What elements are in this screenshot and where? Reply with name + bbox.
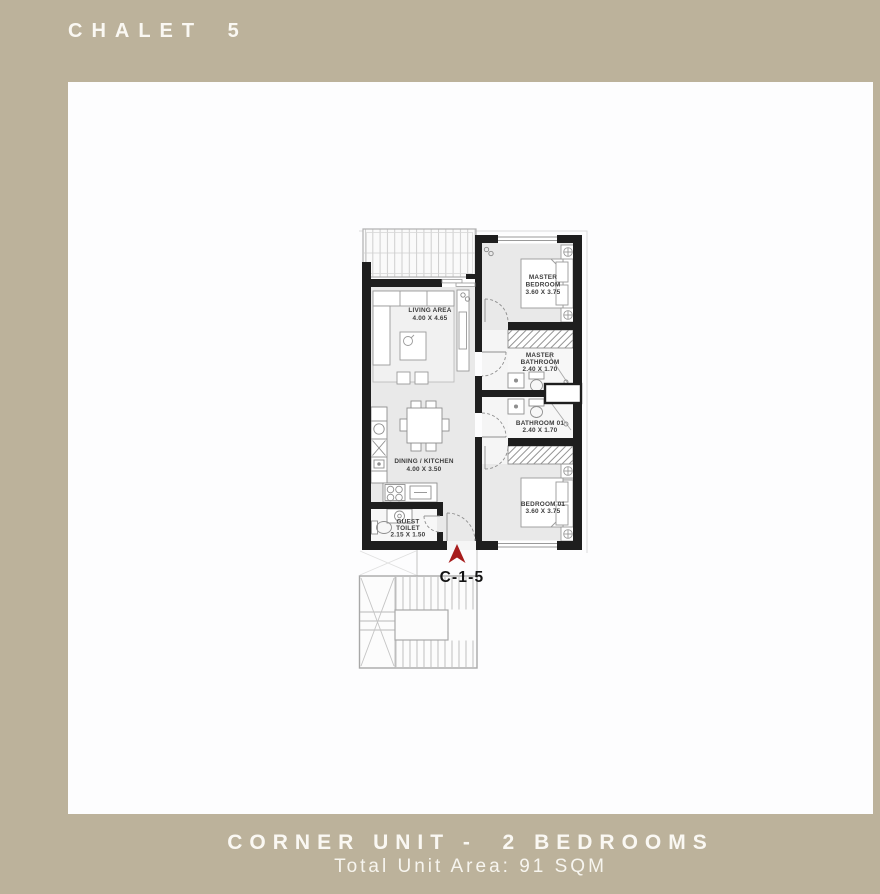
balcony [363, 229, 476, 277]
unit-number-label: C-1-5 [440, 569, 485, 586]
bathroom01-dims: 2.40 X 1.70 [523, 427, 558, 434]
master-bedroom-label2: BEDROOM [526, 282, 561, 289]
bedroom01-label: BEDROOM 01 [521, 501, 566, 508]
living-area-label: LIVING AREA [408, 307, 451, 314]
dining-kitchen-label: DINING / KITCHEN [394, 458, 453, 465]
master-bathroom-label2: BATHROOM [521, 359, 560, 366]
service-shaft [545, 384, 581, 403]
footer-unit-area: Total Unit Area: 91 SQM [68, 856, 873, 878]
master-bathroom-dims: 2.40 X 1.70 [523, 366, 558, 373]
stairs [360, 550, 478, 668]
footer-unit-type: CORNER UNIT - 2 BEDROOMS [68, 831, 873, 855]
bedroom01-dims: 3.60 X 3.75 [526, 508, 561, 515]
master-bedroom-dims: 3.60 X 3.75 [526, 289, 561, 296]
floor-plan-drawing: LIVING AREA 4.00 X 4.65 DINING / KITCHEN… [0, 0, 880, 894]
dining-kitchen-dims: 4.00 X 3.50 [407, 466, 442, 473]
unit-marker: C-1-5 [440, 544, 485, 586]
bathroom01-label: BATHROOM 01 [516, 420, 564, 427]
master-bathroom-label: MASTER [526, 352, 554, 359]
master-bedroom-label: MASTER [529, 274, 557, 281]
guest-toilet-dims: 2.15 X 1.50 [391, 532, 426, 539]
living-area-dims: 4.00 X 4.65 [413, 315, 448, 322]
